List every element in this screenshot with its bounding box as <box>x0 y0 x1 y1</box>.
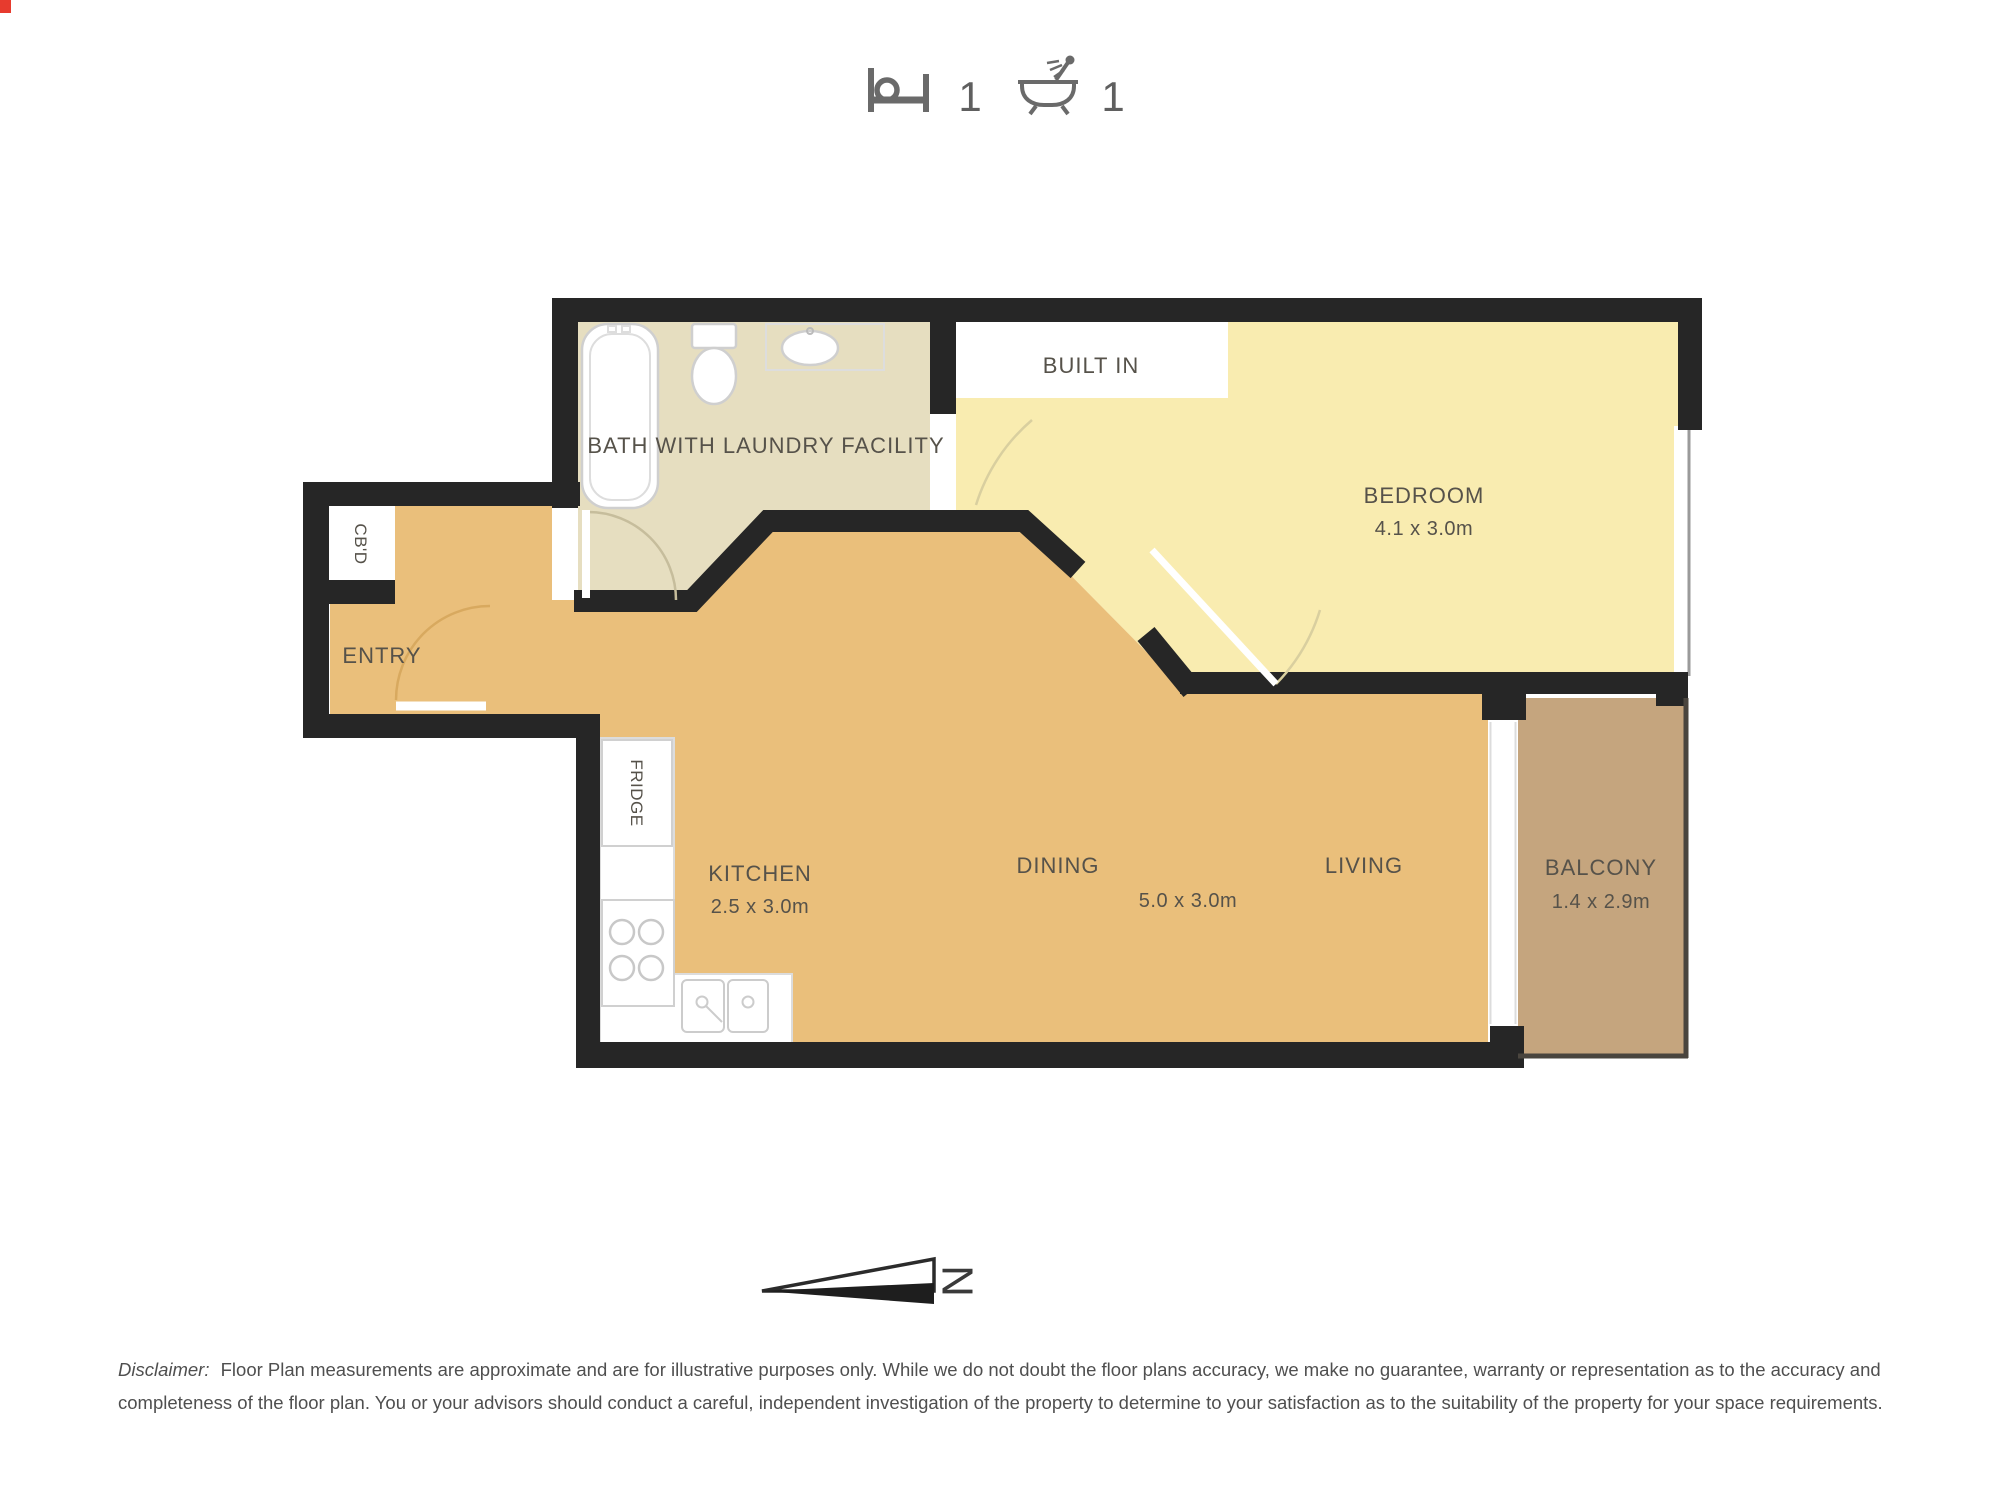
dims-balcony: 1.4 x 2.9m <box>1552 891 1650 913</box>
disclaimer-line2: completeness of the floor plan. You or y… <box>118 1392 1883 1413</box>
wall-cupboard-top <box>303 482 580 506</box>
disclaimer: Disclaimer: Floor Plan measurements are … <box>118 1359 1883 1413</box>
label-fridge: FRIDGE <box>627 759 646 826</box>
label-dining: DINING <box>1017 853 1100 878</box>
disclaimer-prefix: Disclaimer: <box>118 1359 209 1380</box>
toilet-fixture <box>692 324 736 404</box>
label-bedroom: BEDROOM <box>1364 483 1485 508</box>
north-label: N <box>933 1265 982 1297</box>
wall-bedroom-corner <box>1656 672 1688 706</box>
wall-right-top <box>1678 298 1702 430</box>
disclaimer-line1-text: Floor Plan measurements are approximate … <box>221 1359 1881 1380</box>
wall-bedroom-bottom <box>1180 672 1658 694</box>
dims-bedroom: 4.1 x 3.0m <box>1375 518 1473 540</box>
label-balcony: BALCONY <box>1545 855 1657 880</box>
label-bath: BATH WITH LAUNDRY FACILITY <box>587 433 944 458</box>
wall-living-corner <box>1482 694 1526 720</box>
bed-icon <box>868 68 929 112</box>
wall-bathroom-right <box>930 322 956 414</box>
kitchen-sink <box>682 980 768 1032</box>
wall-kitchen-left <box>576 714 600 1066</box>
label-entry: ENTRY <box>342 643 421 668</box>
wall-top <box>552 298 1702 322</box>
wall-bottom <box>576 1042 1524 1068</box>
bed-count: 1 <box>958 73 981 120</box>
compass: N <box>762 1259 982 1304</box>
summary-header: 1 1 <box>868 56 1125 121</box>
label-living: LIVING <box>1325 853 1403 878</box>
label-kitchen: KITCHEN <box>708 861 812 886</box>
floor-plan-page: { "header": { "bed_count": "1", "bath_co… <box>0 0 2000 1500</box>
bathtub-fixture <box>582 324 658 508</box>
label-built-in: BUILT IN <box>1043 353 1139 378</box>
bathroom-doorway <box>552 508 578 600</box>
balcony-sliding-door <box>1491 722 1516 1024</box>
red-marker <box>0 0 11 13</box>
wall-bathroom-left <box>552 298 578 508</box>
dims-kitchen: 2.5 x 3.0m <box>711 896 809 918</box>
bath-count: 1 <box>1101 73 1124 120</box>
wall-entry-bottom <box>303 714 600 738</box>
bathtub-icon <box>1018 56 1078 115</box>
disclaimer-line1: Disclaimer: Floor Plan measurements are … <box>118 1359 1881 1380</box>
wall-entry-left <box>303 482 329 738</box>
dims-living-dining: 5.0 x 3.0m <box>1139 890 1237 912</box>
label-cupboard: CB'D <box>351 523 370 564</box>
floor-plan-canvas: 1 1 <box>0 0 2000 1500</box>
wall-cupboard-bottom <box>327 580 395 604</box>
stove-cooktop <box>602 900 674 1006</box>
